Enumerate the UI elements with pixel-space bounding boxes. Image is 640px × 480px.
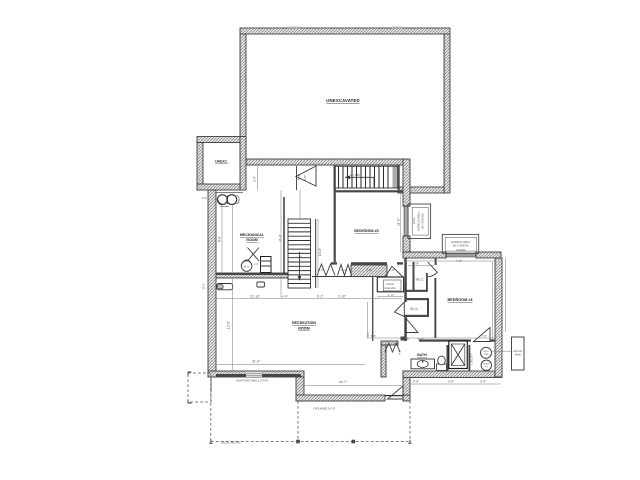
svg-text:10'-0": 10'-0" bbox=[318, 248, 322, 256]
svg-text:12'-8": 12'-8" bbox=[227, 321, 231, 329]
svg-text:7'-8": 7'-8" bbox=[366, 268, 372, 272]
svg-text:2'-10": 2'-10" bbox=[338, 295, 346, 299]
svg-text:5'-0": 5'-0" bbox=[418, 337, 424, 341]
svg-text:ROOM: ROOM bbox=[246, 238, 257, 242]
svg-text:W.I.C.: W.I.C. bbox=[410, 307, 419, 311]
svg-text:14R: 14R bbox=[297, 256, 302, 259]
svg-text:VENT: VENT bbox=[483, 350, 489, 353]
svg-text:9'-2": 9'-2" bbox=[202, 283, 206, 289]
svg-text:UNEXC.: UNEXC. bbox=[215, 160, 228, 164]
svg-text:UNDER: UNDER bbox=[456, 249, 466, 252]
svg-text:SUPPORT WALL (TYP): SUPPORT WALL (TYP) bbox=[236, 379, 268, 383]
svg-text:21'-10": 21'-10" bbox=[250, 295, 260, 299]
svg-text:4'-8": 4'-8" bbox=[282, 295, 288, 299]
svg-text:LINEN: LINEN bbox=[386, 283, 394, 286]
svg-text:WDW: WDW bbox=[413, 217, 416, 224]
svg-text:TYP: TYP bbox=[201, 196, 207, 200]
svg-text:24'-7": 24'-7" bbox=[339, 380, 347, 384]
svg-text:W.I.C.: W.I.C. bbox=[416, 278, 425, 282]
svg-text:7'-8": 7'-8" bbox=[456, 259, 462, 263]
svg-text:BY OTHERS: BY OTHERS bbox=[422, 213, 425, 229]
svg-text:11'-4": 11'-4" bbox=[278, 234, 282, 241]
svg-text:3'-6": 3'-6" bbox=[371, 334, 377, 338]
svg-text:UNEXCAVATED: UNEXCAVATED bbox=[326, 98, 359, 103]
svg-text:7'-6": 7'-6" bbox=[413, 262, 419, 266]
svg-text:31'-6": 31'-6" bbox=[252, 360, 260, 364]
svg-text:2'-8": 2'-8" bbox=[413, 380, 419, 384]
svg-text:MECHANICAL: MECHANICAL bbox=[240, 233, 265, 237]
svg-text:2'-4": 2'-4" bbox=[341, 268, 347, 272]
svg-text:5'-4": 5'-4" bbox=[297, 174, 301, 180]
svg-text:EGRESS WELL: EGRESS WELL bbox=[418, 211, 421, 231]
svg-text:3'-8": 3'-8" bbox=[303, 175, 307, 181]
svg-text:WATER: WATER bbox=[513, 350, 522, 353]
svg-text:UTILITY: UTILITY bbox=[469, 353, 473, 364]
svg-text:SUMP: SUMP bbox=[483, 363, 490, 366]
svg-text:3'-0": 3'-0" bbox=[253, 263, 258, 266]
svg-text:3'-0": 3'-0" bbox=[253, 176, 257, 182]
svg-text:2'-6": 2'-6" bbox=[404, 337, 410, 341]
svg-text:5'-0": 5'-0" bbox=[318, 268, 324, 272]
svg-text:9'-6": 9'-6" bbox=[366, 331, 370, 337]
svg-text:FAN: FAN bbox=[484, 353, 489, 356]
svg-text:6'-0": 6'-0" bbox=[398, 349, 402, 355]
svg-text:BEDROOM #3: BEDROOM #3 bbox=[354, 229, 378, 233]
svg-text:2'-0": 2'-0" bbox=[389, 268, 395, 272]
svg-text:OPENING 14'-0: OPENING 14'-0 bbox=[313, 407, 335, 411]
svg-text:RECREATION: RECREATION bbox=[292, 321, 316, 325]
svg-text:3'-6": 3'-6" bbox=[480, 380, 486, 384]
svg-text:SHELVES: SHELVES bbox=[384, 287, 396, 290]
svg-text:7'-0": 7'-0" bbox=[481, 334, 487, 338]
svg-text:8'-6": 8'-6" bbox=[218, 236, 222, 242]
svg-text:3'-1": 3'-1" bbox=[317, 295, 323, 299]
svg-text:BY OTHERS: BY OTHERS bbox=[453, 244, 469, 247]
svg-text:W.H.: W.H. bbox=[244, 266, 250, 269]
svg-text:11'-6": 11'-6" bbox=[397, 218, 401, 226]
svg-text:TANK: TANK bbox=[514, 354, 521, 357]
svg-text:5'-10": 5'-10" bbox=[388, 294, 395, 297]
svg-text:up 14R: up 14R bbox=[350, 173, 361, 177]
svg-text:DECK ABOVE: DECK ABOVE bbox=[221, 441, 240, 445]
svg-text:ROOM: ROOM bbox=[298, 327, 309, 331]
svg-text:5'-0": 5'-0" bbox=[448, 380, 454, 384]
svg-text:BEDROOM #4: BEDROOM #4 bbox=[447, 298, 473, 302]
svg-text:BATH: BATH bbox=[417, 353, 427, 357]
